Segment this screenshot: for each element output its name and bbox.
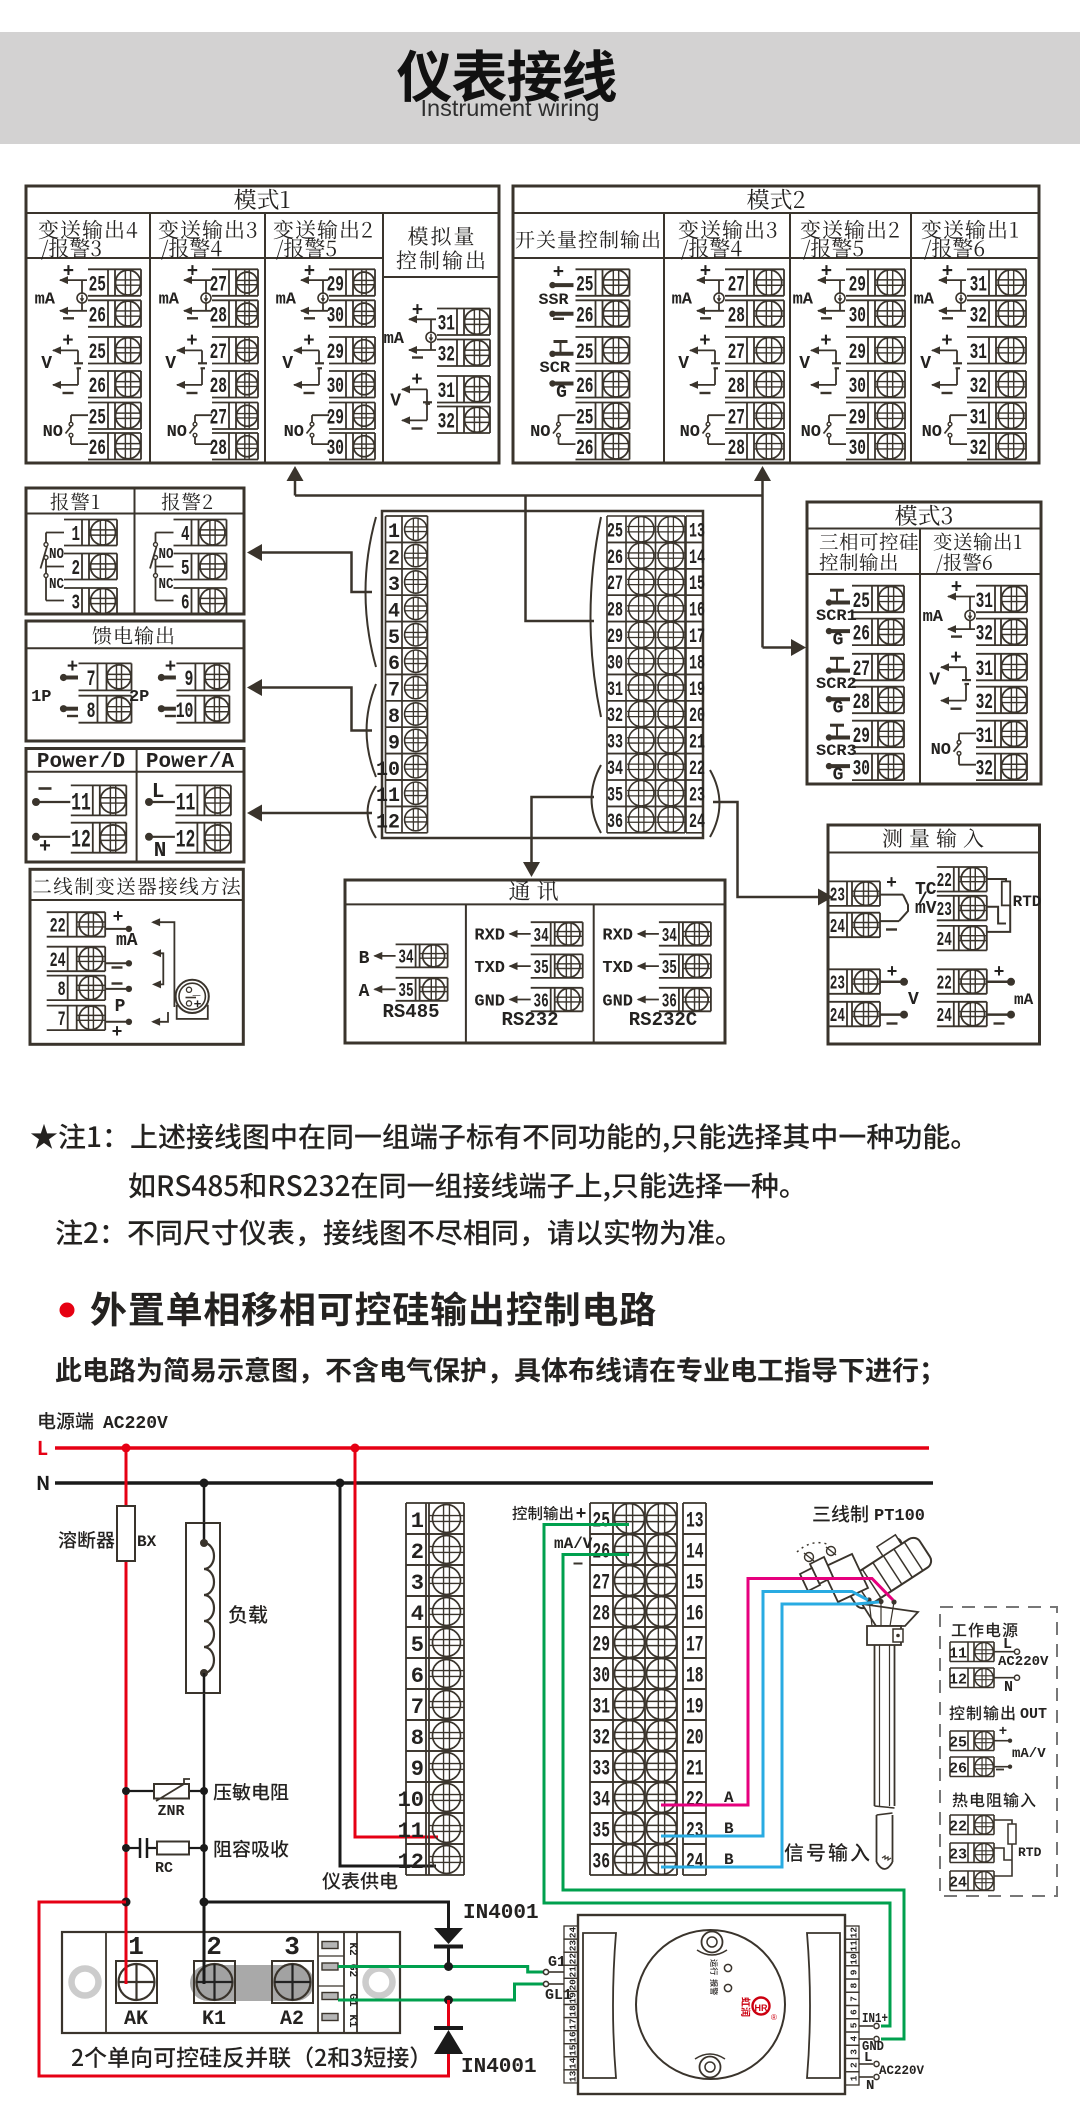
svg-text:+: + — [304, 260, 315, 282]
svg-text:28: 28 — [853, 690, 870, 715]
svg-text:24: 24 — [949, 1874, 967, 1891]
svg-text:G1: G1 — [548, 1954, 566, 1971]
svg-text:N: N — [154, 840, 167, 863]
svg-text:30: 30 — [607, 652, 623, 675]
svg-text:23: 23 — [686, 1818, 704, 1843]
svg-text:27: 27 — [728, 340, 745, 365]
svg-text:NO: NO — [680, 423, 700, 442]
svg-text:11: 11 — [848, 1940, 859, 1952]
svg-text:+: + — [412, 300, 423, 322]
svg-text:2: 2 — [71, 557, 80, 581]
svg-text:13: 13 — [689, 520, 705, 543]
svg-text:10: 10 — [376, 759, 400, 782]
svg-text:mA: mA — [793, 291, 814, 310]
svg-text:2: 2 — [848, 2062, 859, 2068]
svg-text:32: 32 — [976, 757, 993, 782]
svg-text:27: 27 — [592, 1570, 610, 1595]
svg-text:K1: K1 — [202, 2008, 226, 2031]
svg-text:NO: NO — [159, 546, 174, 563]
svg-text:29: 29 — [849, 340, 866, 365]
svg-text:L: L — [152, 781, 165, 804]
svg-text:31: 31 — [970, 340, 987, 365]
svg-text:24: 24 — [937, 929, 952, 951]
svg-text:A: A — [359, 982, 370, 1002]
svg-text:8: 8 — [848, 1982, 859, 1988]
svg-text:+: + — [39, 836, 51, 859]
svg-text:BX: BX — [137, 1533, 157, 1551]
svg-text:RXD: RXD — [602, 927, 633, 946]
svg-text:1: 1 — [128, 1932, 144, 1962]
svg-text:K2: K2 — [346, 1942, 358, 1955]
svg-text:36: 36 — [592, 1849, 610, 1874]
svg-text:11: 11 — [376, 785, 400, 808]
svg-text:21: 21 — [689, 732, 705, 755]
svg-text:19: 19 — [567, 1992, 578, 2004]
svg-text:2: 2 — [388, 548, 400, 571]
svg-text:25: 25 — [576, 406, 593, 431]
svg-text:mA: mA — [384, 330, 405, 349]
svg-text:10: 10 — [848, 1953, 859, 1965]
svg-text:34: 34 — [592, 1787, 610, 1812]
svg-text:3: 3 — [71, 592, 80, 616]
svg-text:32: 32 — [970, 303, 987, 328]
svg-text:12: 12 — [398, 1850, 424, 1875]
svg-text:20: 20 — [686, 1725, 704, 1750]
svg-text:25: 25 — [89, 272, 106, 297]
svg-text:32: 32 — [592, 1725, 610, 1750]
svg-text:7: 7 — [411, 1695, 424, 1720]
svg-text:RS232C: RS232C — [629, 1009, 697, 1031]
svg-text:13: 13 — [686, 1508, 704, 1533]
svg-text:9: 9 — [411, 1757, 424, 1782]
svg-text:30: 30 — [849, 436, 866, 461]
svg-text:9: 9 — [848, 1969, 859, 1975]
svg-text:+: + — [553, 261, 564, 283]
svg-text:30: 30 — [849, 303, 866, 328]
svg-text:9: 9 — [388, 732, 400, 755]
svg-text:+: + — [303, 330, 314, 352]
svg-text:31: 31 — [976, 589, 993, 614]
svg-text:1P: 1P — [31, 688, 51, 707]
svg-text:33: 33 — [607, 732, 623, 755]
svg-text:1: 1 — [848, 2075, 859, 2081]
svg-text:G: G — [833, 766, 844, 786]
svg-text:12: 12 — [848, 1927, 859, 1939]
svg-text:24: 24 — [830, 916, 845, 938]
svg-text:27: 27 — [210, 406, 227, 431]
svg-text:5: 5 — [388, 627, 400, 650]
svg-text:32: 32 — [607, 705, 623, 728]
svg-text:14: 14 — [567, 2057, 578, 2069]
svg-text:7: 7 — [388, 680, 400, 703]
svg-text:SCR2: SCR2 — [816, 675, 857, 693]
svg-text:2: 2 — [411, 1540, 424, 1565]
svg-text:25: 25 — [89, 340, 106, 365]
svg-text:+: + — [994, 963, 1005, 983]
svg-text:24: 24 — [50, 950, 66, 973]
svg-text:V: V — [390, 391, 401, 411]
svg-text:V: V — [908, 990, 919, 1010]
svg-text:32: 32 — [970, 374, 987, 399]
svg-text:29: 29 — [849, 272, 866, 297]
svg-text:+: + — [999, 1724, 1007, 1740]
svg-text:35: 35 — [534, 957, 549, 979]
svg-text:24: 24 — [686, 1849, 704, 1874]
svg-text:20: 20 — [567, 1979, 578, 1991]
svg-text:24: 24 — [689, 811, 705, 834]
svg-text:Power/A: Power/A — [146, 751, 235, 774]
svg-text:26: 26 — [89, 303, 106, 328]
svg-text:32: 32 — [438, 343, 455, 368]
svg-text:26: 26 — [89, 436, 106, 461]
svg-text:26: 26 — [592, 1539, 610, 1564]
svg-text:30: 30 — [327, 303, 344, 328]
svg-text:Power/D: Power/D — [37, 751, 125, 774]
svg-text:34: 34 — [607, 758, 623, 781]
svg-text:22: 22 — [937, 972, 952, 994]
svg-text:15: 15 — [689, 573, 705, 596]
svg-text:25: 25 — [949, 1734, 967, 1751]
svg-text:27: 27 — [607, 573, 623, 596]
svg-text:mA: mA — [159, 291, 180, 310]
svg-text:17: 17 — [567, 2018, 578, 2030]
svg-text:25: 25 — [89, 406, 106, 431]
svg-text:14: 14 — [686, 1539, 704, 1564]
svg-text:2P: 2P — [129, 688, 149, 707]
svg-text:8: 8 — [58, 979, 66, 1002]
svg-text:34: 34 — [662, 925, 677, 947]
svg-text:31: 31 — [970, 272, 987, 297]
svg-text:+: + — [63, 260, 74, 282]
svg-text:28: 28 — [210, 303, 227, 328]
svg-text:28: 28 — [210, 436, 227, 461]
svg-text:36: 36 — [607, 811, 623, 834]
svg-text:AC220V: AC220V — [998, 1654, 1049, 1670]
svg-text:+: + — [700, 260, 711, 282]
svg-text:+: + — [67, 656, 78, 678]
svg-text:1: 1 — [71, 523, 80, 547]
svg-text:22: 22 — [949, 1818, 967, 1835]
svg-text:+: + — [942, 260, 953, 282]
svg-text:+: + — [950, 647, 961, 669]
svg-text:4: 4 — [848, 2035, 859, 2041]
svg-text:29: 29 — [849, 406, 866, 431]
svg-text:mA: mA — [1014, 991, 1034, 1009]
svg-text:+: + — [941, 330, 952, 352]
svg-text:35: 35 — [662, 957, 677, 979]
svg-text:25: 25 — [592, 1508, 610, 1533]
svg-text:HR: HR — [755, 2003, 768, 2013]
svg-text:29: 29 — [607, 626, 623, 649]
svg-text:N: N — [866, 2078, 874, 2094]
svg-text:NO: NO — [530, 423, 550, 442]
svg-text:20: 20 — [689, 705, 705, 728]
svg-text:RS485: RS485 — [382, 1001, 439, 1023]
svg-text:+: + — [113, 908, 124, 928]
svg-text:16: 16 — [567, 2031, 578, 2043]
svg-text:24: 24 — [937, 1005, 952, 1027]
svg-text:5: 5 — [181, 557, 190, 581]
svg-text:+: + — [411, 369, 422, 391]
svg-text:+: + — [187, 260, 198, 282]
svg-text:RTD: RTD — [1018, 1845, 1042, 1860]
svg-text:+: + — [62, 330, 73, 352]
svg-text:30: 30 — [327, 374, 344, 399]
svg-text:6: 6 — [181, 592, 190, 616]
svg-text:AC220V: AC220V — [103, 1414, 168, 1434]
svg-text:NO: NO — [801, 423, 821, 442]
svg-text:8: 8 — [411, 1726, 424, 1751]
svg-text:+: + — [165, 656, 176, 678]
svg-text:V: V — [678, 354, 689, 374]
svg-text:+: + — [820, 330, 831, 352]
svg-text:25: 25 — [576, 340, 593, 365]
svg-text:31: 31 — [607, 679, 623, 702]
svg-text:+: + — [194, 997, 202, 1012]
svg-text:4: 4 — [388, 600, 400, 623]
svg-text:NO: NO — [167, 423, 187, 442]
svg-text:27: 27 — [728, 406, 745, 431]
svg-text:N: N — [1004, 1679, 1013, 1696]
svg-text:6: 6 — [848, 2009, 859, 2015]
svg-text:12: 12 — [376, 812, 400, 835]
svg-text:29: 29 — [327, 406, 344, 431]
svg-text:1: 1 — [411, 1509, 424, 1534]
svg-text:22: 22 — [50, 916, 66, 939]
svg-text:21: 21 — [686, 1756, 704, 1781]
svg-text:15: 15 — [686, 1570, 704, 1595]
svg-text:V: V — [799, 354, 810, 374]
svg-text:33: 33 — [592, 1756, 610, 1781]
svg-text:30: 30 — [853, 757, 870, 782]
svg-text:32: 32 — [438, 410, 455, 435]
svg-text:31: 31 — [970, 406, 987, 431]
svg-text:15: 15 — [567, 2044, 578, 2056]
svg-text:+: + — [821, 260, 832, 282]
svg-text:31: 31 — [976, 657, 993, 682]
svg-text:11: 11 — [398, 1819, 424, 1844]
svg-text:17: 17 — [686, 1632, 704, 1657]
svg-text:12: 12 — [176, 828, 196, 855]
svg-text:mA/V: mA/V — [554, 1535, 593, 1553]
svg-text:16: 16 — [686, 1601, 704, 1626]
svg-text:23: 23 — [937, 899, 952, 921]
svg-text:28: 28 — [728, 303, 745, 328]
svg-text:mA: mA — [35, 291, 56, 310]
svg-text:16: 16 — [689, 600, 705, 623]
svg-text:24: 24 — [830, 1005, 845, 1027]
svg-text:30: 30 — [849, 374, 866, 399]
svg-text:14: 14 — [689, 547, 705, 570]
svg-text:ZNR: ZNR — [157, 1803, 184, 1820]
svg-text:2: 2 — [206, 1932, 222, 1962]
svg-text:18: 18 — [686, 1663, 704, 1688]
svg-text:V: V — [929, 670, 940, 690]
svg-text:IN4001: IN4001 — [463, 1902, 539, 1925]
svg-text:V: V — [41, 354, 52, 374]
svg-text:26: 26 — [949, 1760, 967, 1777]
svg-text:G: G — [833, 699, 844, 719]
svg-text:8: 8 — [388, 706, 400, 729]
svg-text:3: 3 — [388, 574, 400, 597]
svg-text:G: G — [556, 383, 567, 403]
svg-text:28: 28 — [592, 1601, 610, 1626]
svg-text:12: 12 — [71, 828, 91, 855]
svg-text:+: + — [186, 330, 197, 352]
svg-text:mA: mA — [116, 931, 138, 951]
svg-text:25: 25 — [576, 272, 593, 297]
svg-text:11: 11 — [176, 790, 196, 817]
svg-text:AC220V: AC220V — [879, 2063, 924, 2078]
svg-text:35: 35 — [592, 1818, 610, 1843]
svg-text:28: 28 — [728, 436, 745, 461]
svg-text:27: 27 — [210, 340, 227, 365]
svg-text:19: 19 — [686, 1694, 704, 1719]
svg-text:11: 11 — [71, 790, 91, 817]
svg-text:3: 3 — [848, 2049, 859, 2055]
svg-text:_: _ — [192, 983, 201, 998]
svg-text:13: 13 — [567, 2070, 578, 2082]
svg-text:+: + — [699, 330, 710, 352]
svg-text:SCR: SCR — [540, 359, 571, 377]
svg-text:27: 27 — [210, 272, 227, 297]
svg-text:+: + — [886, 874, 897, 894]
svg-text:6: 6 — [388, 653, 400, 676]
svg-text:24: 24 — [567, 1927, 578, 1939]
svg-text:29: 29 — [592, 1632, 610, 1657]
svg-text:Instrument wiring: Instrument wiring — [421, 95, 600, 121]
svg-text:35: 35 — [398, 980, 413, 1002]
svg-text:RC: RC — [155, 1860, 173, 1877]
svg-text:31: 31 — [976, 724, 993, 749]
svg-text:23: 23 — [949, 1846, 967, 1863]
svg-text:IN4001: IN4001 — [461, 2056, 537, 2079]
svg-text:NC: NC — [49, 576, 64, 593]
svg-text:28: 28 — [728, 374, 745, 399]
svg-text:31: 31 — [438, 312, 455, 337]
svg-text:mA/V: mA/V — [1012, 1746, 1046, 1762]
svg-text:3: 3 — [411, 1571, 424, 1596]
svg-text:22: 22 — [686, 1787, 704, 1812]
svg-text:12: 12 — [949, 1671, 967, 1688]
svg-text:RXD: RXD — [474, 927, 505, 946]
svg-text:9: 9 — [185, 667, 194, 692]
svg-text:+: + — [951, 577, 962, 599]
svg-text:4: 4 — [411, 1602, 424, 1627]
svg-text:26: 26 — [576, 303, 593, 328]
svg-text:5: 5 — [848, 2022, 859, 2028]
svg-text:+: + — [576, 1505, 587, 1525]
svg-text:27: 27 — [728, 272, 745, 297]
svg-text:32: 32 — [970, 436, 987, 461]
svg-text:26: 26 — [853, 622, 870, 647]
svg-text:28: 28 — [607, 600, 623, 623]
svg-text:31: 31 — [592, 1694, 610, 1719]
svg-text:30: 30 — [327, 436, 344, 461]
svg-text:P: P — [115, 997, 126, 1017]
svg-text:SSR: SSR — [539, 291, 569, 309]
svg-text:31: 31 — [438, 379, 455, 404]
svg-text:mA: mA — [276, 291, 297, 310]
svg-text:NO: NO — [49, 546, 64, 563]
svg-text:V: V — [282, 354, 293, 374]
svg-text:32: 32 — [976, 622, 993, 647]
svg-text:29: 29 — [327, 340, 344, 365]
svg-text:26: 26 — [89, 374, 106, 399]
svg-text:7: 7 — [58, 1009, 66, 1032]
svg-text:L: L — [1003, 1636, 1012, 1653]
svg-text:RS232: RS232 — [501, 1009, 558, 1031]
svg-text:23: 23 — [567, 1940, 578, 1952]
svg-text:10: 10 — [176, 699, 194, 724]
svg-text:34: 34 — [398, 947, 413, 969]
svg-text:TXD: TXD — [602, 959, 633, 978]
svg-text:+: + — [112, 1023, 123, 1043]
svg-text:35: 35 — [607, 784, 623, 807]
svg-text:30: 30 — [592, 1663, 610, 1688]
svg-text:8: 8 — [87, 699, 96, 724]
svg-text:SCR3: SCR3 — [816, 742, 857, 760]
svg-text:4: 4 — [181, 523, 190, 547]
svg-text:26: 26 — [576, 436, 593, 461]
svg-text:NO: NO — [922, 423, 942, 442]
svg-text:NO: NO — [931, 741, 951, 760]
svg-text:26: 26 — [607, 547, 623, 570]
svg-text:19: 19 — [689, 679, 705, 702]
svg-text:V: V — [165, 354, 176, 374]
svg-text:NO: NO — [284, 423, 304, 442]
svg-text:6: 6 — [411, 1664, 424, 1689]
svg-text:10: 10 — [398, 1788, 424, 1813]
svg-text:23: 23 — [689, 784, 705, 807]
svg-text:mV: mV — [915, 899, 937, 919]
svg-text:3: 3 — [284, 1932, 300, 1962]
svg-text:+: + — [887, 963, 898, 983]
svg-text:®: ® — [771, 2013, 777, 2022]
svg-text:PT100: PT100 — [874, 1507, 925, 1526]
svg-text:SCR1: SCR1 — [816, 607, 857, 625]
svg-text:mA: mA — [923, 608, 944, 627]
svg-text:G: G — [833, 631, 844, 651]
svg-text:22: 22 — [567, 1953, 578, 1965]
svg-text:23: 23 — [830, 972, 845, 994]
svg-text:GND: GND — [474, 992, 505, 1011]
svg-text:1: 1 — [388, 521, 400, 544]
svg-text:26: 26 — [576, 374, 593, 399]
svg-text:22: 22 — [689, 758, 705, 781]
svg-text:B: B — [359, 949, 370, 969]
svg-text:22: 22 — [937, 870, 952, 892]
svg-text:29: 29 — [327, 272, 344, 297]
svg-text:28: 28 — [210, 374, 227, 399]
svg-text:34: 34 — [534, 925, 549, 947]
svg-text:18: 18 — [567, 2005, 578, 2017]
svg-text:K1: K1 — [346, 2014, 358, 2028]
svg-text:5: 5 — [411, 1633, 424, 1658]
svg-text:25: 25 — [607, 520, 623, 543]
svg-text:mA: mA — [914, 291, 935, 310]
svg-text:RTD: RTD — [1013, 893, 1042, 911]
svg-text:11: 11 — [949, 1645, 967, 1662]
svg-text:7: 7 — [87, 667, 96, 692]
svg-text:AK: AK — [124, 2008, 148, 2031]
svg-text:V: V — [920, 354, 931, 374]
svg-text:7: 7 — [848, 1996, 859, 2002]
svg-text:21: 21 — [567, 1966, 578, 1978]
svg-text:OUT: OUT — [1020, 1706, 1047, 1723]
svg-text:18: 18 — [689, 652, 705, 675]
svg-text:A2: A2 — [280, 2008, 304, 2031]
